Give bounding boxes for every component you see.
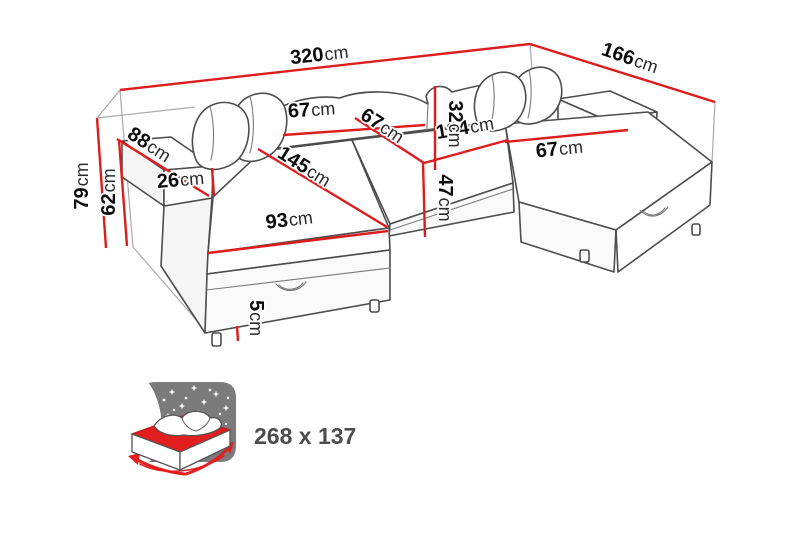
left-chaise-side-face — [161, 198, 212, 333]
sofa-drawing — [122, 67, 712, 346]
dim-label-leg-height: 5cm — [245, 300, 267, 336]
right-chaise-leg — [580, 250, 589, 262]
dim-line-leg-height — [237, 326, 238, 341]
dim-label-backrest-cushion-height: 32cm — [444, 100, 466, 147]
left-chaise-leg — [370, 300, 379, 312]
sofa-dimension-diagram-page: 320cm 166cm 79cm 62cm 88cm 26cm 145cm 93… — [0, 0, 800, 533]
sofa-bed-function-icon — [100, 366, 236, 474]
dim-label-overall-depth: 166cm — [599, 38, 661, 78]
dim-label-seat-front-height: 47cm — [434, 174, 456, 221]
sleeping-size-label: 268 x 137 — [254, 423, 356, 449]
dim-label-base-height: 62cm — [98, 168, 120, 215]
sofa-dimension-diagram: 320cm 166cm 79cm 62cm 88cm 26cm 145cm 93… — [0, 0, 800, 533]
left-chaise-leg — [212, 333, 221, 346]
right-chaise-leg — [692, 224, 700, 235]
sofa-right-chaise — [505, 112, 712, 272]
dim-label-overall-height: 79cm — [71, 162, 93, 209]
